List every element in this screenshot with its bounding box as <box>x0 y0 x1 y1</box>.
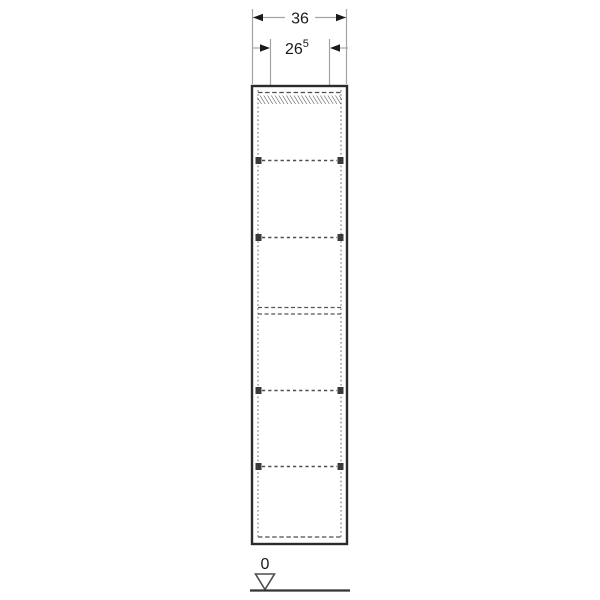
drawing-canvas: 36 265 <box>0 0 600 600</box>
datum-marker: 0 <box>250 556 350 591</box>
opening-width-label: 265 <box>285 38 309 58</box>
opening-arrowhead-right-icon <box>330 44 340 51</box>
shelf-pin-left <box>256 157 262 164</box>
shelf-pin-right <box>338 387 344 394</box>
shelf-pin-left <box>256 463 262 470</box>
cabinet-technical-drawing: 36 265 <box>0 0 600 600</box>
arrowhead-right-icon <box>336 14 346 21</box>
opening-width-superscript: 5 <box>303 38 309 50</box>
shelf-pin-left <box>256 234 262 241</box>
datum-triangle-icon <box>256 574 275 590</box>
shelf-pin-right <box>338 157 344 164</box>
arrowhead-left-icon <box>253 14 263 21</box>
opening-width-value: 26 <box>285 41 303 58</box>
cabinet-outline <box>252 86 347 544</box>
opening-arrowhead-left-icon <box>260 44 270 51</box>
cabinet-body <box>252 86 347 544</box>
shelf-pin-right <box>338 463 344 470</box>
shelf-pin-left <box>256 387 262 394</box>
datum-zero-label: 0 <box>261 556 270 573</box>
top-panel-hatch <box>258 96 343 105</box>
shelf-pin-right <box>338 234 344 241</box>
overall-width-label: 36 <box>291 11 309 28</box>
